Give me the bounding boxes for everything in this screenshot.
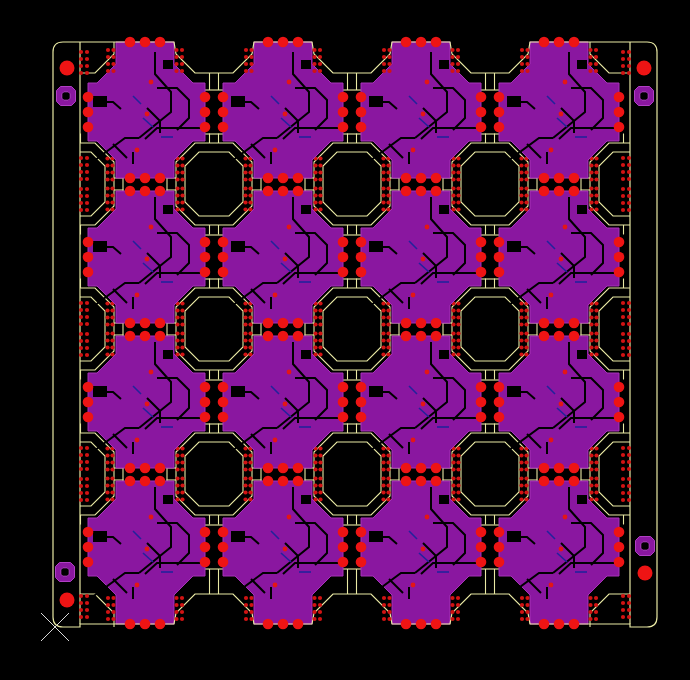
mouse-bite-hole [313, 467, 317, 471]
mouse-bite-hole [386, 186, 390, 190]
via [145, 402, 150, 407]
drill-pad [356, 237, 367, 248]
mouse-bite-hole [111, 603, 115, 607]
mouse-bite-hole [174, 55, 178, 59]
mouse-bite-hole [381, 170, 385, 174]
mouse-bite-hole [105, 186, 109, 190]
drill-pad [614, 122, 625, 133]
mouse-bite-hole [105, 331, 109, 335]
mouse-bite-hole [318, 301, 322, 305]
mouse-bite-hole [243, 193, 247, 197]
drill-pad [218, 542, 229, 553]
mouse-bite-hole [318, 186, 322, 190]
mouse-bite-hole [519, 460, 523, 464]
drill-pad [140, 476, 151, 487]
mouse-bite-hole [456, 460, 460, 464]
mouse-bite-hole [594, 490, 598, 494]
via [549, 438, 554, 443]
mouse-bite-hole [180, 476, 184, 480]
drill-pad [401, 318, 412, 329]
mouse-bite-hole [381, 467, 385, 471]
mouse-bite-hole [180, 301, 184, 305]
mouse-bite-hole [589, 476, 593, 480]
mouse-bite-hole [524, 200, 528, 204]
mouse-bite-hole [594, 596, 598, 600]
drill-pad [539, 37, 550, 48]
mouse-bite-hole [519, 301, 523, 305]
via [149, 370, 154, 375]
drill-pad [263, 463, 274, 474]
mouse-bite-hole [627, 322, 631, 326]
mouse-bite-hole [318, 483, 322, 487]
drill-pad [401, 173, 412, 184]
mouse-bite-hole [105, 453, 109, 457]
mouse-bite-hole [386, 467, 390, 471]
drill-pad [539, 173, 550, 184]
mouse-bite-hole [386, 177, 390, 181]
mouse-bite-hole [175, 315, 179, 319]
mouse-bite-hole [621, 346, 625, 350]
drill-pad [200, 267, 211, 278]
mouse-bite-hole [621, 608, 625, 612]
mouse-bite-hole [456, 301, 460, 305]
mouse-bite-hole [243, 453, 247, 457]
mouse-bite-hole [386, 308, 390, 312]
mouse-bite-hole [386, 315, 390, 319]
mouse-bite-hole [79, 170, 83, 174]
mouse-bite-hole [520, 617, 524, 621]
drill-pad [200, 237, 211, 248]
mouse-bite-hole [175, 476, 179, 480]
mouse-bite-hole [244, 617, 248, 621]
via [411, 293, 416, 298]
mouse-bite-hole [588, 48, 592, 52]
fiducial-mark [637, 61, 652, 76]
mouse-bite-hole [621, 64, 625, 68]
mouse-bite-hole [175, 170, 179, 174]
drill-pad [278, 173, 289, 184]
via [149, 515, 154, 520]
mouse-bite-hole [524, 315, 528, 319]
mouse-bite-hole [456, 610, 460, 614]
drill-pad [155, 476, 166, 487]
mouse-bite-hole [105, 345, 109, 349]
mouse-bite-hole [519, 200, 523, 204]
drill-pad [494, 107, 505, 118]
mouse-bite-hole [318, 55, 322, 59]
drill-pad [494, 412, 505, 423]
mouse-bite-hole [180, 331, 184, 335]
mouse-bite-hole [387, 617, 391, 621]
drill-pad [356, 527, 367, 538]
drill-pad [218, 527, 229, 538]
mouse-bite-hole [79, 71, 83, 75]
mouse-bite-hole [519, 345, 523, 349]
mouse-bite-hole [456, 170, 460, 174]
mouse-bite-hole [621, 615, 625, 619]
drill-pad [338, 382, 349, 393]
drill-pad [293, 186, 304, 197]
mouse-bite-hole [594, 156, 598, 160]
copper-notch [439, 350, 449, 359]
mouse-bite-hole [85, 187, 89, 191]
mouse-bite-hole [594, 301, 598, 305]
mouse-bite-hole [450, 62, 454, 66]
drill-pad [401, 619, 412, 630]
mouse-bite-hole [318, 156, 322, 160]
mouse-bite-hole [451, 186, 455, 190]
mouse-bite-hole [381, 338, 385, 342]
mouse-bite-hole [318, 331, 322, 335]
mouse-bite-hole [589, 163, 593, 167]
mouse-bite-hole [312, 62, 316, 66]
mouse-bite-hole [524, 186, 528, 190]
mouse-bite-hole [381, 177, 385, 181]
mouse-bite-hole [589, 193, 593, 197]
via [287, 225, 292, 230]
mouse-bite-hole [105, 460, 109, 464]
drill-pad [218, 92, 229, 103]
mouse-bite-hole [180, 177, 184, 181]
drill-pad [263, 331, 274, 342]
mouse-bite-hole [451, 308, 455, 312]
mouse-bite-hole [520, 603, 524, 607]
mouse-bite-hole [524, 308, 528, 312]
mouse-bite-hole [248, 453, 252, 457]
mouse-bite-hole [85, 484, 89, 488]
mouse-bite-hole [382, 596, 386, 600]
mouse-bite-hole [248, 490, 252, 494]
mouse-bite-hole [594, 453, 598, 457]
mouse-bite-hole [451, 338, 455, 342]
drill-pad [356, 397, 367, 408]
mouse-bite-hole [79, 177, 83, 181]
drill-pad [476, 557, 487, 568]
drill-pad [200, 122, 211, 133]
mouse-bite-hole [524, 170, 528, 174]
via [559, 402, 564, 407]
drill-pad [356, 557, 367, 568]
mouse-bite-hole [627, 71, 631, 75]
mouse-bite-hole [312, 596, 316, 600]
mouse-bite-hole [621, 170, 625, 174]
mouse-bite-hole [318, 603, 322, 607]
via [145, 257, 150, 262]
mouse-bite-hole [180, 467, 184, 471]
mouse-bite-hole [105, 207, 109, 211]
mouse-bite-hole [520, 62, 524, 66]
mouse-bite-hole [79, 187, 83, 191]
mouse-bite-hole [456, 186, 460, 190]
mouse-bite-hole [79, 50, 83, 54]
mouse-bite-hole [110, 200, 114, 204]
mouse-bite-hole [312, 48, 316, 52]
mouse-bite-hole [621, 308, 625, 312]
mouse-bite-hole [589, 315, 593, 319]
mouse-bite-hole [450, 596, 454, 600]
mouse-bite-hole [524, 163, 528, 167]
drill-pad [614, 267, 625, 278]
mouse-bite-hole [627, 332, 631, 336]
mouse-bite-hole [525, 55, 529, 59]
mouse-bite-hole [312, 610, 316, 614]
mouse-bite-hole [174, 62, 178, 66]
drill-pad [263, 37, 274, 48]
mouse-bite-hole [589, 308, 593, 312]
mouse-bite-hole [381, 352, 385, 356]
via [559, 547, 564, 552]
mouse-bite-hole [381, 156, 385, 160]
pcb-canvas[interactable] [0, 0, 690, 680]
mouse-bite-hole [456, 200, 460, 204]
mouse-bite-hole [381, 490, 385, 494]
mouse-bite-hole [594, 483, 598, 487]
drill-pad [476, 382, 487, 393]
mouse-bite-hole [451, 200, 455, 204]
drill-pad [293, 463, 304, 474]
mouse-bite-hole [79, 498, 83, 502]
copper-notch [577, 60, 587, 69]
mouse-bite-hole [524, 453, 528, 457]
mouse-bite-hole [381, 453, 385, 457]
mouse-bite-hole [85, 194, 89, 198]
mouse-bite-hole [313, 177, 317, 181]
via [421, 402, 426, 407]
mouse-bite-hole [248, 476, 252, 480]
mouse-bite-hole [79, 57, 83, 61]
mouse-bite-hole [313, 476, 317, 480]
mouse-bite-hole [524, 490, 528, 494]
mouse-bite-hole [627, 201, 631, 205]
mouse-bite-hole [456, 596, 460, 600]
drill-pad [539, 331, 550, 342]
mouse-bite-hole [85, 353, 89, 357]
mouse-bite-hole [105, 352, 109, 356]
mouse-bite-hole [110, 177, 114, 181]
drill-pad [356, 267, 367, 278]
mouse-bite-hole [520, 596, 524, 600]
mouse-bite-hole [381, 207, 385, 211]
drill-pad [155, 186, 166, 197]
drill-pad [200, 92, 211, 103]
mouse-bite-hole [519, 331, 523, 335]
mouse-bite-hole [244, 603, 248, 607]
drill-pad [431, 331, 442, 342]
mouse-bite-hole [106, 62, 110, 66]
mouse-bite-hole [248, 338, 252, 342]
mouse-bite-hole [381, 186, 385, 190]
mouse-bite-hole [451, 476, 455, 480]
mouse-bite-hole [243, 483, 247, 487]
mouse-bite-hole [105, 315, 109, 319]
mouse-bite-hole [175, 308, 179, 312]
mouse-bite-hole [627, 615, 631, 619]
mouse-bite-hole [244, 610, 248, 614]
mouse-bite-hole [85, 446, 89, 450]
mouse-bite-hole [248, 193, 252, 197]
mouse-bite-hole [175, 322, 179, 326]
drill-pad [83, 527, 94, 538]
mouse-bite-hole [525, 69, 529, 73]
pcb-panel-viewport[interactable] [0, 0, 690, 680]
mouse-bite-hole [174, 603, 178, 607]
mouse-bite-hole [382, 603, 386, 607]
mouse-bite-hole [105, 177, 109, 181]
drill-pad [614, 412, 625, 423]
mouse-bite-hole [621, 491, 625, 495]
mouse-bite-hole [456, 476, 460, 480]
mouse-bite-hole [456, 48, 460, 52]
mouse-bite-hole [175, 490, 179, 494]
drill-pad [569, 331, 580, 342]
mouse-bite-hole [525, 62, 529, 66]
mouse-bite-hole [382, 62, 386, 66]
mouse-bite-hole [524, 460, 528, 464]
mouse-bite-hole [105, 163, 109, 167]
mouse-bite-hole [243, 345, 247, 349]
mouse-bite-hole [627, 308, 631, 312]
mouse-bite-hole [105, 322, 109, 326]
copper-notch [577, 350, 587, 359]
via [425, 225, 430, 230]
drill-pad [83, 122, 94, 133]
mouse-bite-hole [248, 331, 252, 335]
mouse-bite-hole [588, 596, 592, 600]
drill-pad [338, 397, 349, 408]
mouse-bite-hole [451, 177, 455, 181]
mouse-bite-hole [79, 608, 83, 612]
mouse-bite-hole [594, 446, 598, 450]
drill-pad [539, 476, 550, 487]
drill-pad [140, 463, 151, 474]
drill-pad [125, 318, 136, 329]
mouse-bite-hole [524, 467, 528, 471]
mouse-bite-hole [175, 338, 179, 342]
mouse-bite-hole [85, 308, 89, 312]
mouse-bite-hole [180, 55, 184, 59]
via [563, 80, 568, 85]
mouse-bite-hole [520, 55, 524, 59]
mouse-bite-hole [105, 467, 109, 471]
mouse-bite-hole [621, 301, 625, 305]
mouse-bite-hole [85, 467, 89, 471]
via [273, 293, 278, 298]
mouse-bite-hole [451, 490, 455, 494]
mouse-bite-hole [110, 170, 114, 174]
via [411, 438, 416, 443]
drill-pad [140, 318, 151, 329]
mouse-bite-hole [313, 453, 317, 457]
mouse-bite-hole [79, 156, 83, 160]
mouse-bite-hole [381, 345, 385, 349]
mouse-bite-hole [589, 460, 593, 464]
mouse-bite-hole [243, 200, 247, 204]
mouse-bite-hole [524, 331, 528, 335]
via [559, 257, 564, 262]
fiducial-mark [60, 593, 75, 608]
mouse-bite-hole [174, 617, 178, 621]
via [287, 80, 292, 85]
mouse-bite-hole [519, 315, 523, 319]
mouse-bite-hole [627, 194, 631, 198]
mouse-bite-hole [105, 170, 109, 174]
mouse-bite-hole [524, 177, 528, 181]
drill-pad [263, 476, 274, 487]
drill-pad [554, 476, 565, 487]
mouse-bite-hole [594, 460, 598, 464]
drill-pad [200, 412, 211, 423]
mouse-bite-hole [318, 617, 322, 621]
via [145, 547, 150, 552]
drill-pad [338, 267, 349, 278]
mouse-bite-hole [243, 497, 247, 501]
mouse-bite-hole [456, 69, 460, 73]
via [135, 293, 140, 298]
drill-pad [338, 252, 349, 263]
mouse-bite-hole [313, 163, 317, 167]
drill-pad [293, 619, 304, 630]
drill-pad [83, 397, 94, 408]
mouse-bite-hole [519, 446, 523, 450]
mouse-bite-hole [105, 490, 109, 494]
mouse-bite-hole [456, 163, 460, 167]
drill-pad [83, 267, 94, 278]
mouse-bite-hole [110, 331, 114, 335]
mouse-bite-hole [105, 200, 109, 204]
mouse-bite-hole [175, 331, 179, 335]
drill-pad [554, 318, 565, 329]
mouse-bite-hole [456, 467, 460, 471]
mouse-bite-hole [594, 62, 598, 66]
mouse-bite-hole [588, 610, 592, 614]
mouse-bite-hole [589, 186, 593, 190]
mouse-bite-hole [105, 476, 109, 480]
mouse-bite-hole [85, 594, 89, 598]
mouse-bite-hole [621, 460, 625, 464]
mouse-bite-hole [318, 610, 322, 614]
mouse-bite-hole [594, 207, 598, 211]
mouse-bite-hole [175, 177, 179, 181]
drill-pad [200, 397, 211, 408]
drill-pad [218, 252, 229, 263]
mouse-bite-hole [318, 69, 322, 73]
via [549, 148, 554, 153]
mouse-bite-hole [621, 453, 625, 457]
mouse-bite-hole [244, 62, 248, 66]
mouse-bite-hole [110, 345, 114, 349]
mouse-bite-hole [381, 308, 385, 312]
mouse-bite-hole [627, 491, 631, 495]
via [283, 402, 288, 407]
drill-pad [614, 107, 625, 118]
mouse-bite-hole [450, 48, 454, 52]
mouse-bite-hole [456, 156, 460, 160]
copper-notch [163, 350, 173, 359]
mouse-bite-hole [318, 170, 322, 174]
mouse-bite-hole [111, 48, 115, 52]
mouse-bite-hole [110, 460, 114, 464]
drill-pad [338, 412, 349, 423]
drill-pad [218, 557, 229, 568]
mouse-bite-hole [386, 331, 390, 335]
mouse-bite-hole [180, 338, 184, 342]
drill-pad [356, 412, 367, 423]
drill-pad [293, 476, 304, 487]
mouse-bite-hole [85, 460, 89, 464]
drill-pad [278, 463, 289, 474]
mouse-bite-hole [180, 603, 184, 607]
drill-pad [356, 382, 367, 393]
